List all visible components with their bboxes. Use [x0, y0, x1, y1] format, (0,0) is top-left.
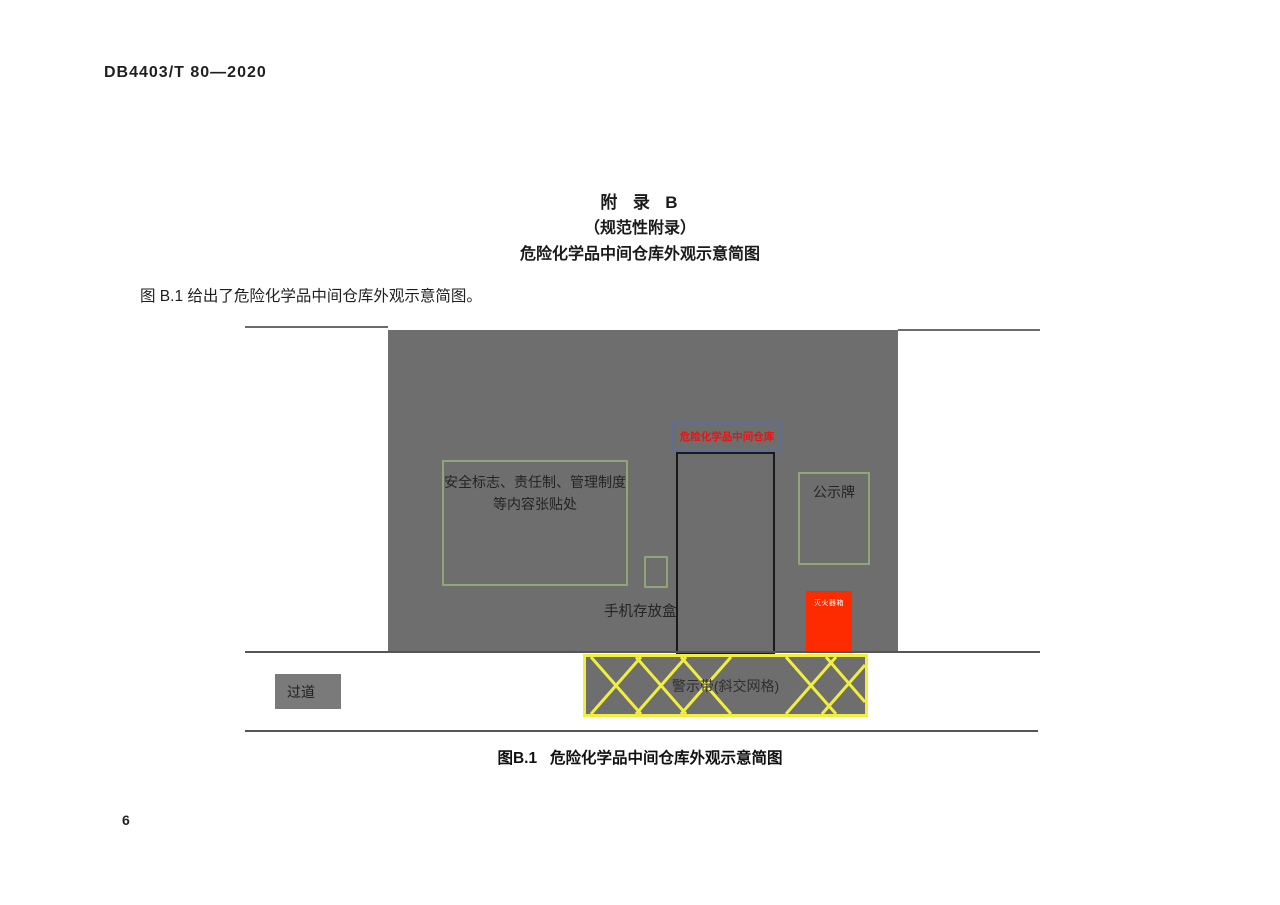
- warehouse-door: [676, 452, 775, 654]
- phone-storage-label: 手机存放盒: [604, 600, 677, 621]
- ground-line-middle: [245, 651, 1040, 653]
- warning-tape: 警示带(斜交网格): [583, 654, 868, 717]
- aisle-label: 过道: [287, 682, 315, 702]
- notice-board-label: 公示牌: [800, 482, 868, 502]
- ground-line-top-left: [245, 326, 388, 328]
- intro-paragraph: 图 B.1 给出了危险化学品中间仓库外观示意简图。: [140, 284, 482, 306]
- figure-caption: 图B.1 危险化学品中间仓库外观示意简图: [0, 746, 1280, 768]
- doc-number: DB4403/T 80—2020: [104, 64, 267, 82]
- ground-line-bottom: [245, 730, 1038, 732]
- appendix-title: 附 录 B: [0, 188, 1280, 213]
- warehouse-door-sign: 危险化学品中间仓库: [672, 421, 782, 452]
- ground-line-top-right: [898, 329, 1040, 331]
- poster-area-line2: 等内容张贴处: [444, 493, 626, 515]
- fire-extinguisher-box: 灭火器箱: [806, 591, 852, 651]
- appendix-subtitle: （规范性附录）: [0, 214, 1280, 238]
- appendix-heading: 危险化学品中间仓库外观示意简图: [0, 240, 1280, 264]
- notice-board-box: 公示牌: [798, 472, 870, 565]
- fire-extinguisher-label: 灭火器箱: [806, 598, 852, 608]
- poster-area-box: 安全标志、责任制、管理制度 等内容张贴处: [442, 460, 628, 586]
- door-sign-label: 危险化学品中间仓库: [680, 429, 775, 444]
- page-number: 6: [122, 812, 130, 828]
- phone-storage-box: [644, 556, 668, 588]
- warning-tape-label: 警示带(斜交网格): [586, 657, 865, 714]
- document-page: DB4403/T 80—2020 附 录 B （规范性附录） 危险化学品中间仓库…: [0, 0, 1280, 905]
- poster-area-line1: 安全标志、责任制、管理制度: [444, 471, 626, 493]
- aisle-box: 过道: [275, 674, 341, 709]
